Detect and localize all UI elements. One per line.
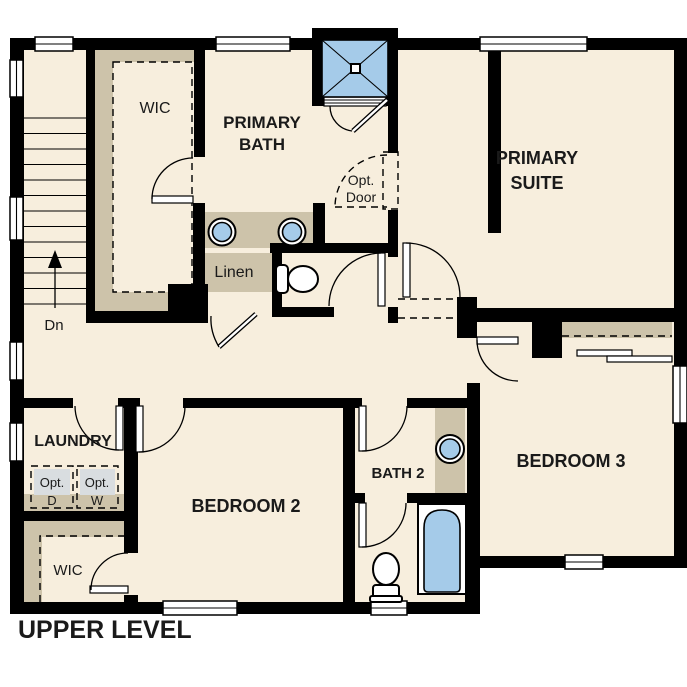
bedroom3-west-wall [467, 383, 480, 568]
window [480, 37, 587, 51]
primary-bath-label-line2: BATH [239, 135, 285, 154]
floor-plan: WIC PRIMARY BATH PRIMARY SUITE Opt. Door… [0, 0, 687, 687]
vanity-sink-right [279, 219, 306, 246]
window [163, 601, 237, 615]
bath2-north-wall [407, 398, 467, 408]
floor-plan-drawing: WIC PRIMARY BATH PRIMARY SUITE Opt. Door… [0, 0, 687, 687]
wic-bath-wall-upper [194, 50, 205, 157]
opt-dryer-label-line2: D [47, 493, 56, 508]
bath2-label: BATH 2 [371, 465, 424, 482]
bath2-divider-wall [407, 493, 467, 503]
laundry-north-wall [24, 398, 73, 408]
window [35, 37, 73, 51]
bedroom3-label: BEDROOM 3 [516, 451, 625, 471]
vanity-sink-left [209, 219, 236, 246]
bath2-sink [436, 435, 464, 463]
hall-east-pier [457, 297, 477, 338]
window [10, 60, 23, 97]
exterior-wall-bottom [10, 602, 480, 614]
bedroom3-closet-pier [532, 322, 562, 358]
bath2-divider-stub [355, 493, 365, 503]
laundry-south-wall [24, 511, 138, 521]
opt-dryer-label-line1: Opt. [40, 475, 65, 490]
laundry-counter [24, 494, 124, 513]
bedroom2-east-wall [343, 398, 355, 602]
shower-fixture [322, 40, 388, 97]
primary-suite-south-wall [477, 308, 675, 322]
primary-bath-label-line1: PRIMARY [223, 113, 301, 132]
wic-corner-pier [168, 284, 208, 317]
plan-title: UPPER LEVEL [18, 616, 192, 644]
window [371, 601, 407, 615]
bathtub [418, 504, 466, 594]
exterior-wall-left [10, 38, 24, 614]
primary-wic-label: WIC [139, 100, 170, 117]
bedroom2-north-wall [183, 398, 362, 408]
window [10, 197, 23, 240]
exterior-wall-right [674, 38, 687, 568]
opt-door-label-line2: Door [346, 189, 377, 205]
window [216, 37, 290, 51]
primary-suite-west-wall [488, 50, 501, 233]
primary-toilet [276, 265, 318, 293]
toilet-room-east-stub-lower [388, 307, 398, 323]
bath-corridor-wall-upper [388, 103, 398, 153]
stairwell-wall [86, 50, 95, 323]
opt-door-label-line1: Opt. [348, 172, 374, 188]
opt-washer-label-line2: W [91, 493, 104, 508]
bath2-toilet [370, 553, 402, 602]
opt-washer-label-line1: Opt. [85, 475, 110, 490]
toilet-room-south-wall [272, 307, 334, 317]
primary-suite-label-line2: SUITE [510, 173, 563, 193]
bedroom2-wic-label: WIC [53, 562, 82, 579]
window [10, 342, 23, 380]
primary-suite-label-line1: PRIMARY [496, 148, 578, 168]
bath-corridor-wall-lower [388, 210, 398, 253]
window [673, 366, 687, 423]
stair-direction-label: Dn [44, 317, 63, 334]
wic2-door-stub [124, 595, 138, 602]
window [565, 555, 603, 569]
laundry-label: LAUNDRY [34, 433, 112, 450]
linen-label: Linen [214, 264, 253, 281]
primary-wic-floor [113, 62, 194, 292]
bedroom2-label: BEDROOM 2 [191, 496, 300, 516]
window [10, 423, 23, 461]
